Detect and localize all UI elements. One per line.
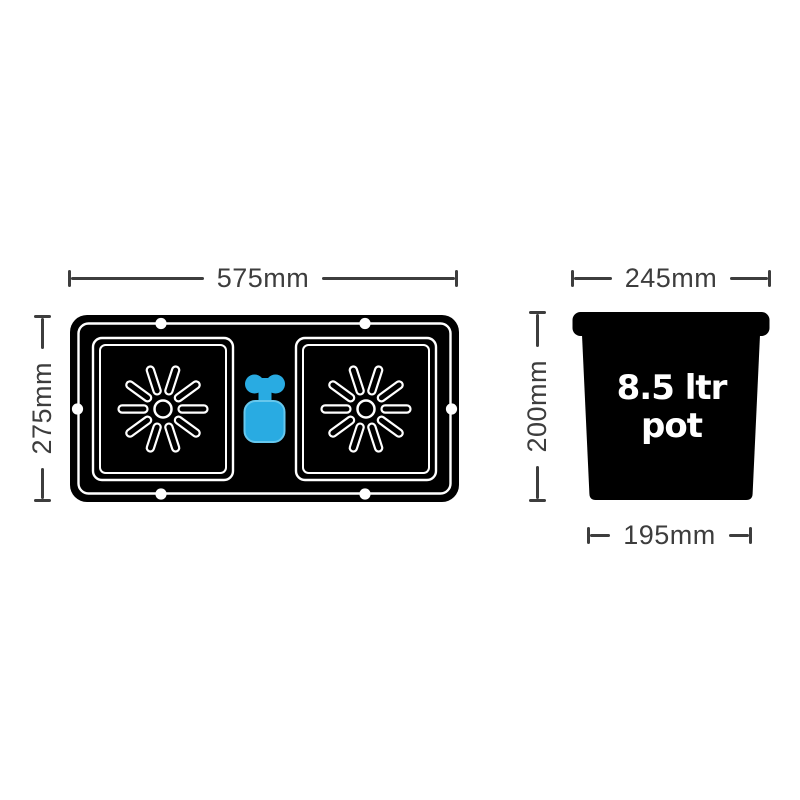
- dimension-line: [730, 277, 768, 280]
- pot-height-label: 200mm: [522, 360, 553, 453]
- pot-base-width-label: 195mm: [623, 520, 716, 551]
- tray-width-label: 575mm: [217, 263, 310, 294]
- pot-base-width-dimension: 195mm: [587, 521, 752, 549]
- pot-volume-text: 8.5 ltr pot: [591, 369, 752, 445]
- dimension-line: [41, 318, 44, 349]
- tray-depth-label: 275mm: [27, 362, 58, 455]
- dimension-end-tick: [749, 527, 752, 544]
- pot-height-dimension: 200mm: [523, 311, 551, 502]
- dimension-line: [71, 277, 204, 280]
- dimension-line: [729, 534, 749, 537]
- peg-hole-dot: [359, 318, 370, 329]
- aquavalve-icon: [245, 375, 286, 443]
- dimension-line: [536, 466, 539, 499]
- peg-hole-dot: [72, 403, 83, 414]
- dimension-line: [590, 534, 610, 537]
- pot-volume-line1: 8.5 ltr: [591, 369, 752, 407]
- dimension-end-tick: [455, 270, 458, 287]
- product-dimension-diagram: 575mm 275mm: [0, 0, 800, 800]
- dimension-end-tick: [34, 499, 51, 502]
- tray-width-dimension: 575mm: [68, 264, 458, 292]
- dimension-end-tick: [529, 499, 546, 502]
- dimension-end-tick: [768, 270, 771, 287]
- pot-volume-line2: pot: [591, 407, 752, 445]
- dimension-line: [536, 314, 539, 347]
- peg-hole-dot: [446, 403, 457, 414]
- peg-hole-dot: [155, 318, 166, 329]
- dimension-line: [41, 468, 44, 499]
- pot-rim: [573, 312, 770, 336]
- dimension-line: [322, 277, 455, 280]
- tray-depth-dimension: 275mm: [28, 315, 56, 502]
- pot-top-width-dimension: 245mm: [571, 264, 771, 292]
- peg-hole-dot: [155, 488, 166, 499]
- dimension-line: [574, 277, 612, 280]
- tray-top-view: [70, 315, 459, 502]
- peg-hole-dot: [359, 488, 370, 499]
- pot-top-width-label: 245mm: [625, 263, 718, 294]
